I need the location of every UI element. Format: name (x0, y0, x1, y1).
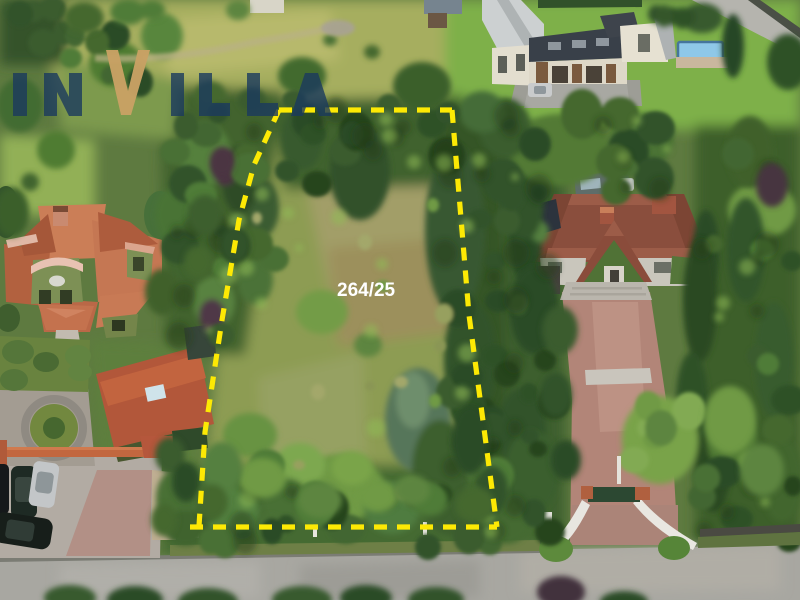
svg-text:264/25: 264/25 (337, 280, 396, 301)
